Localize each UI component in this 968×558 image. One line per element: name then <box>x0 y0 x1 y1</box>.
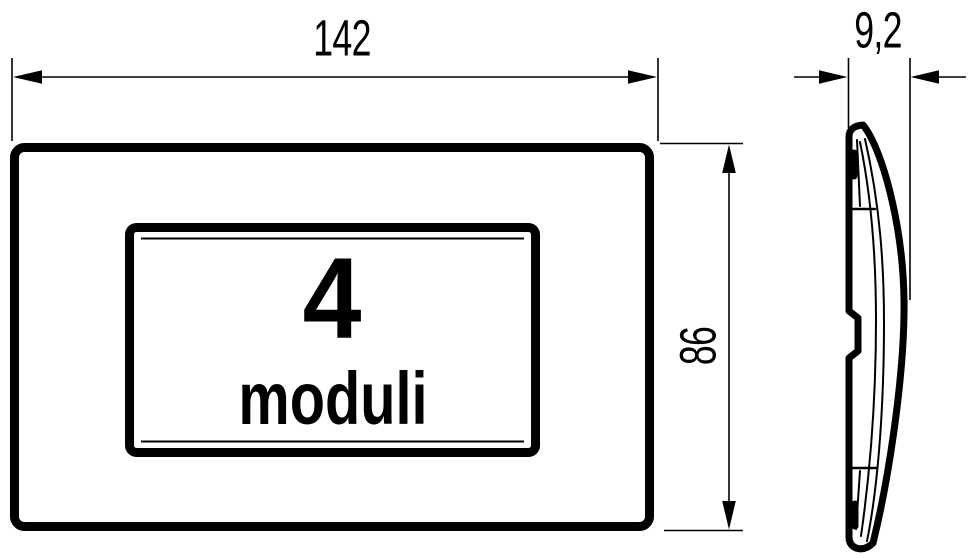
module-word: moduli <box>238 362 427 436</box>
drawing-linework <box>0 0 968 558</box>
module-count: 4 <box>303 242 362 357</box>
height-dimension-label: 86 <box>673 327 724 365</box>
width-dimension <box>12 58 658 141</box>
technical-drawing-canvas: 142 86 9,2 4 moduli <box>0 0 968 558</box>
height-arrow-bottom <box>722 501 736 530</box>
side-view <box>849 125 904 549</box>
height-arrow-top <box>722 145 736 174</box>
depth-arrow-left <box>819 70 848 84</box>
width-arrow-left <box>13 70 42 84</box>
width-dimension-label: 142 <box>313 13 370 64</box>
width-arrow-right <box>628 70 657 84</box>
depth-dimension-label: 9,2 <box>854 5 902 56</box>
depth-arrow-right <box>911 70 940 84</box>
